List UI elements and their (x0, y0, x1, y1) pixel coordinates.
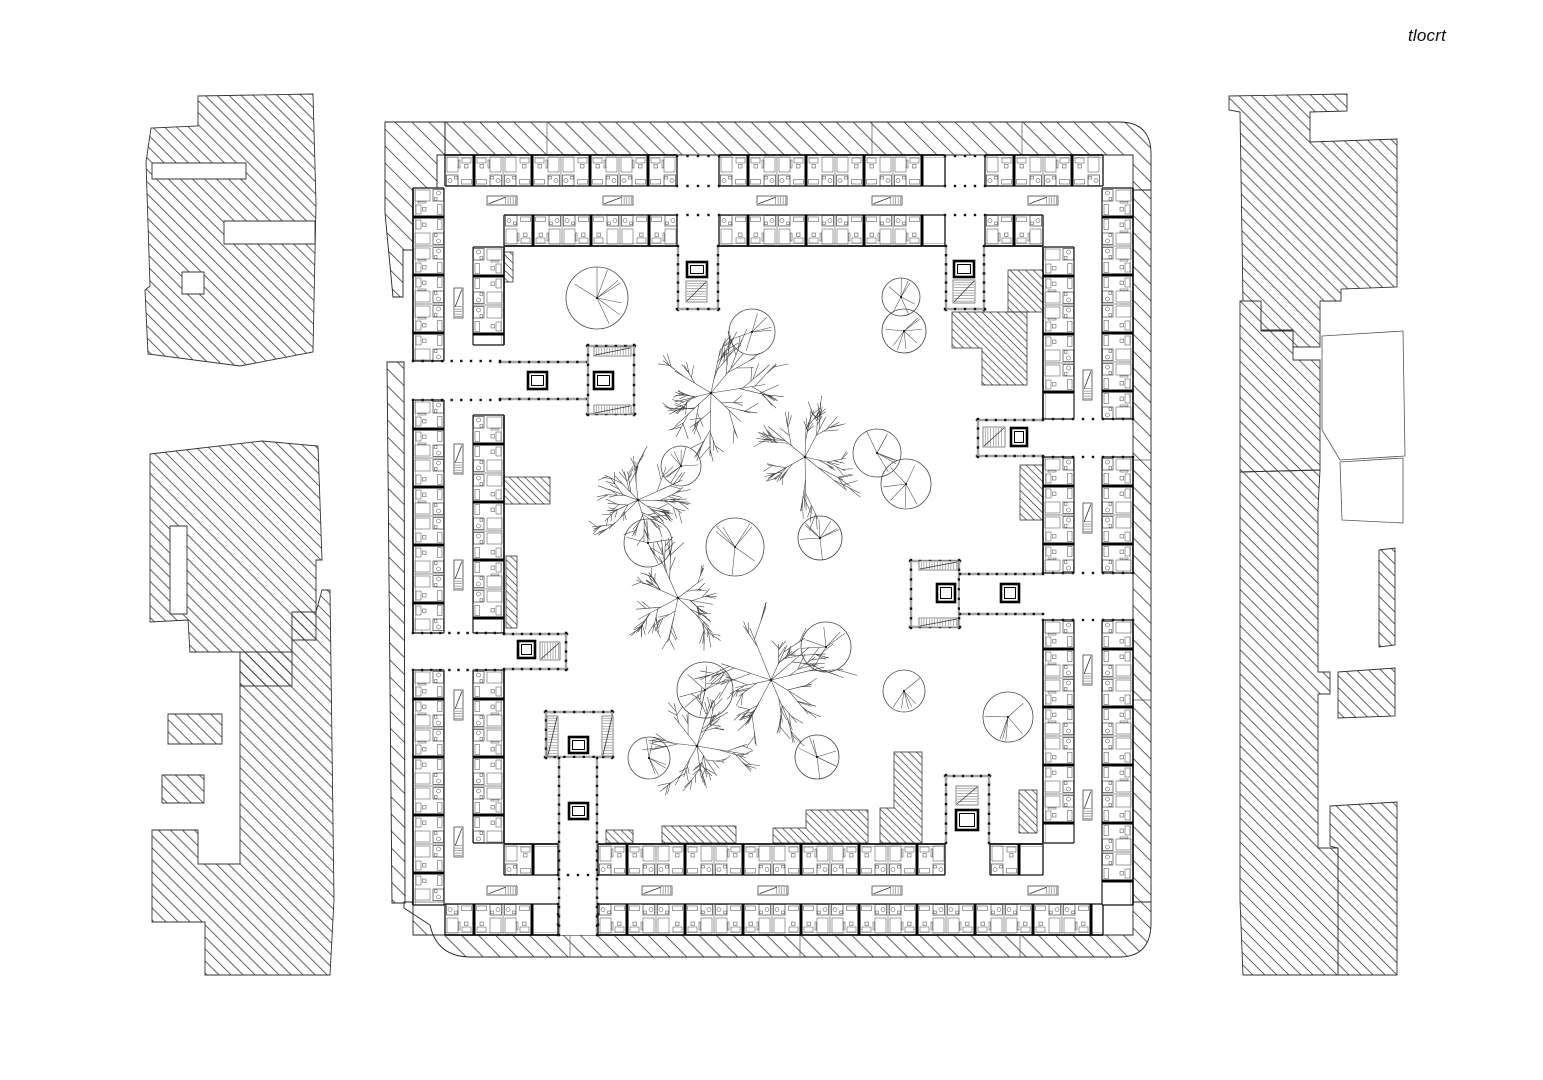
plan-layers (145, 94, 1405, 975)
drawing-title: tlocrt (1408, 26, 1446, 46)
floor-plan-page: tlocrt (0, 0, 1543, 1080)
site-plan-drawing (0, 0, 1543, 1080)
